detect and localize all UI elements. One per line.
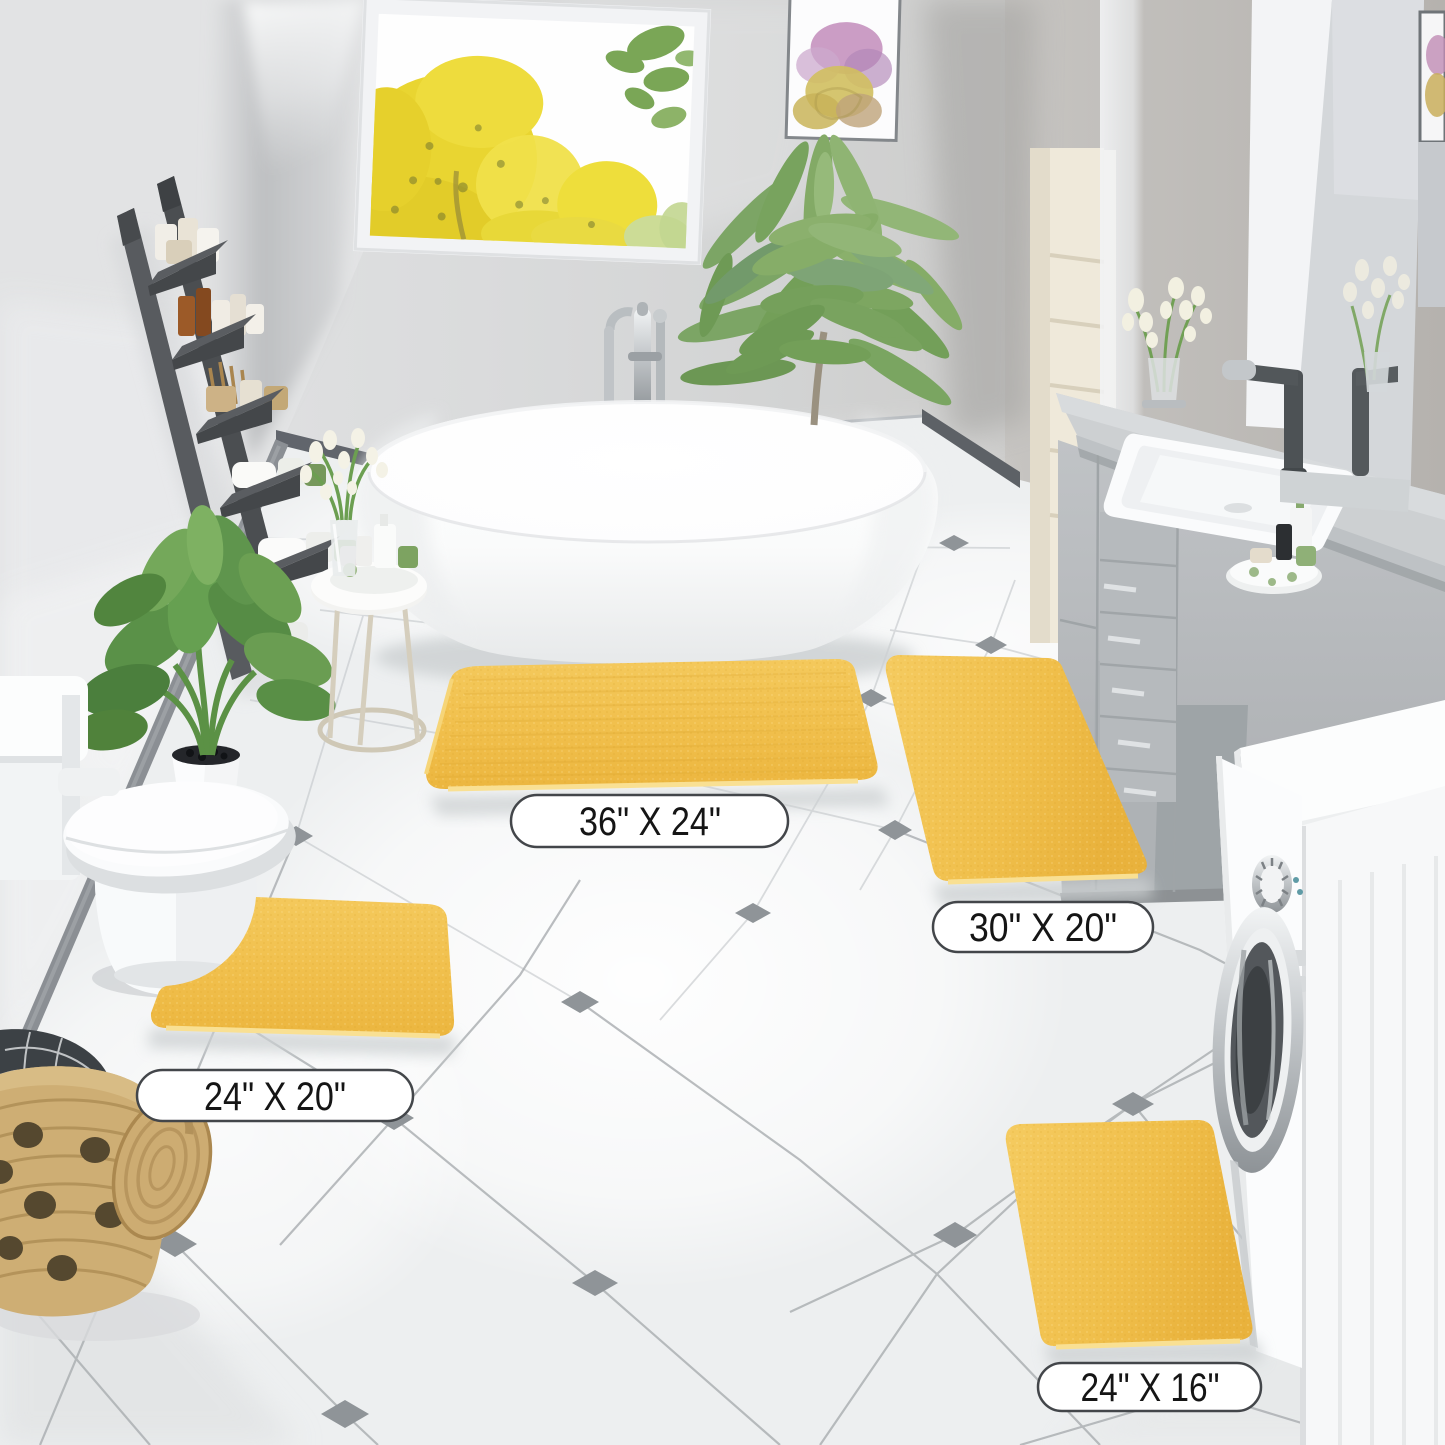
svg-text:36" X 24": 36" X 24" [579,800,721,844]
svg-text:24" X 20": 24" X 20" [204,1075,346,1119]
svg-text:24" X 16": 24" X 16" [1081,1366,1220,1410]
svg-text:30" X 20": 30" X 20" [969,906,1117,950]
